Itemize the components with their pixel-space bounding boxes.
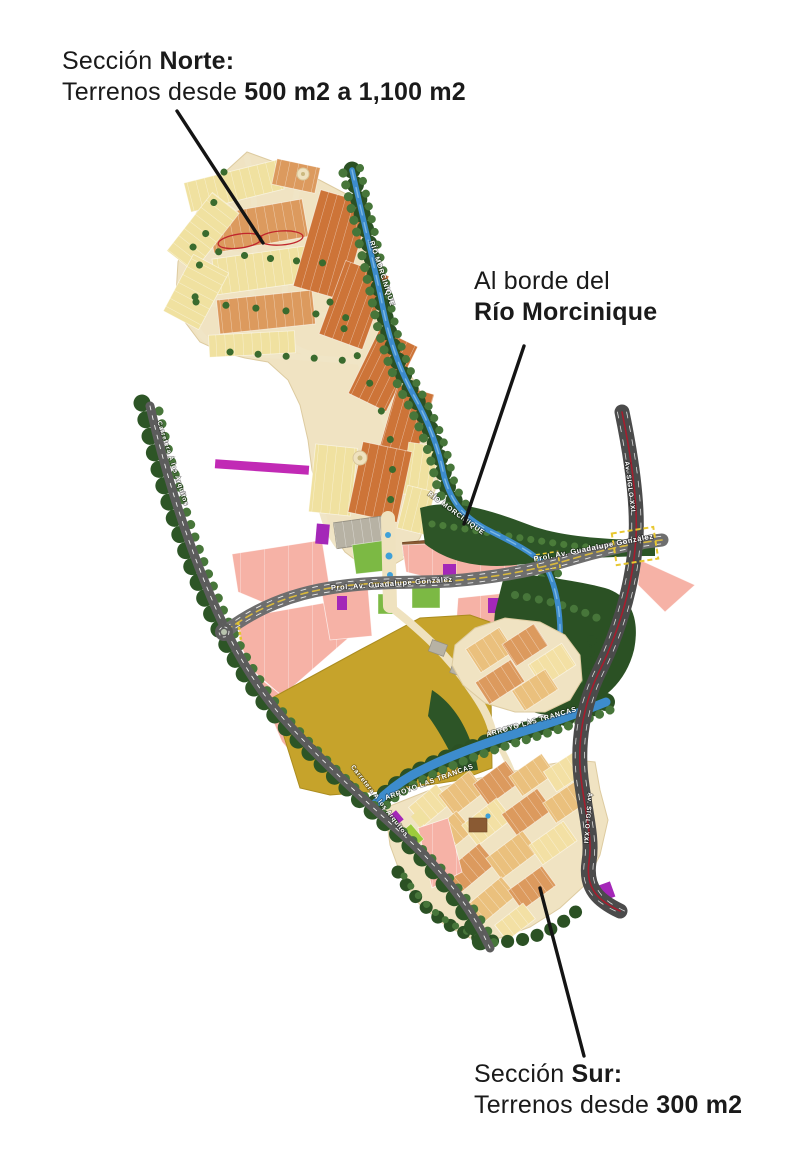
annotation-sur-line2: Terrenos desde 300 m2 <box>474 1090 742 1121</box>
site-plan-map: Carretera A los Arquitos Carretera A los… <box>0 0 800 1162</box>
annotation-rio-line1: Al borde del <box>474 266 657 297</box>
annotation-norte-line2: Terrenos desde 500 m2 a 1,100 m2 <box>62 77 466 108</box>
annotation-seccion-sur: Sección Sur: Terrenos desde 300 m2 <box>474 1059 742 1121</box>
annotation-rio-line2: Río Morcinique <box>474 297 657 328</box>
annotation-sur-line1: Sección Sur: <box>474 1059 742 1090</box>
annotation-norte-line1: Sección Norte: <box>62 46 466 77</box>
annotation-seccion-norte: Sección Norte: Terrenos desde 500 m2 a 1… <box>62 46 466 108</box>
magenta-accent-bar <box>215 459 309 475</box>
pointer-line-rio <box>464 346 524 524</box>
master-plan-page: Carretera A los Arquitos Carretera A los… <box>0 0 800 1162</box>
annotation-rio-morcinique: Al borde del Río Morcinique <box>474 266 657 328</box>
